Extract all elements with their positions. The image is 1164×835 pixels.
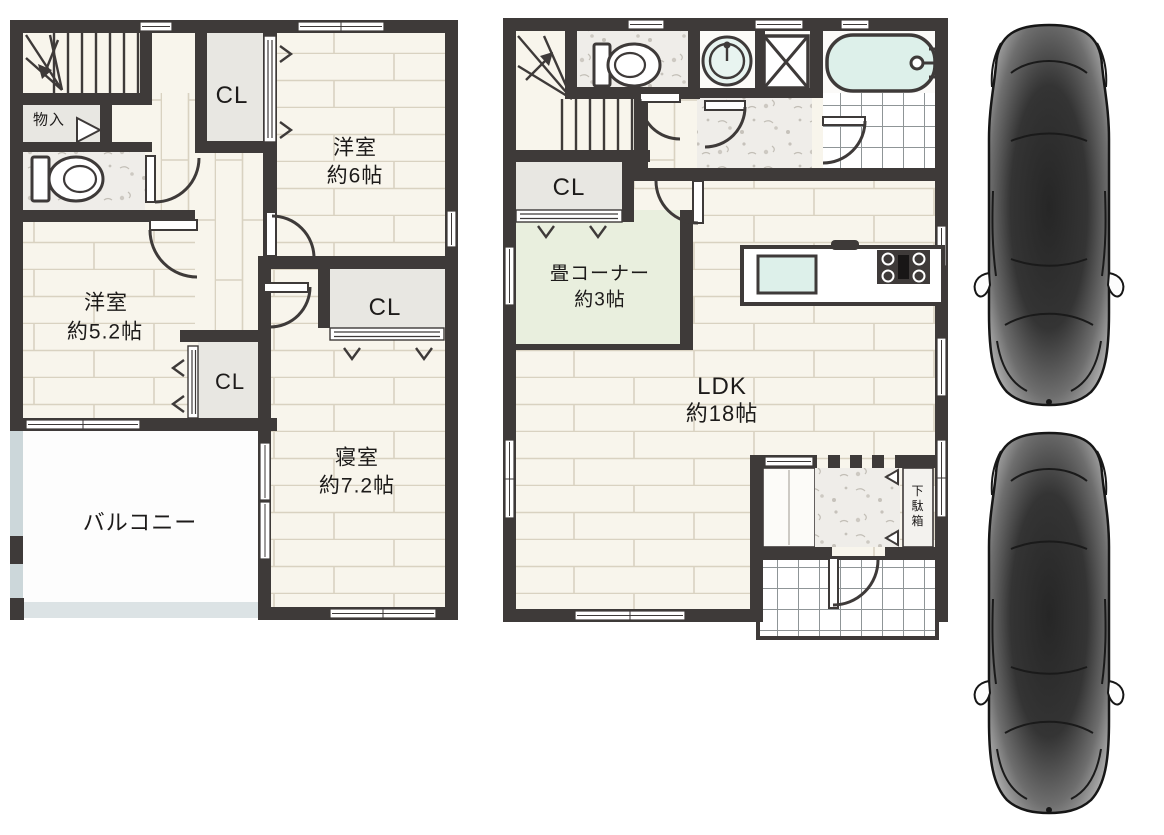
porch xyxy=(758,558,937,638)
1f-hall-floor xyxy=(648,99,697,168)
label-western52-size: 約5.2帖 xyxy=(67,322,143,343)
floor-plan-1f xyxy=(503,18,948,638)
car-top-view-2 xyxy=(975,433,1124,813)
floor-plan-page: 物入 CL 洋室 約6帖 洋室 約5.2帖 CL CL 寝室 約7.2帖 バルコ… xyxy=(0,0,1164,835)
stove-icon xyxy=(877,250,930,284)
label-bedroom-name: 寝室 xyxy=(335,448,379,469)
label-western6-size: 約6帖 xyxy=(327,166,384,187)
car-top-view-1 xyxy=(975,25,1124,405)
washing-machine-icon xyxy=(764,36,808,88)
kitchen-sink-icon xyxy=(758,256,816,293)
1f-toilet-icon xyxy=(594,44,660,86)
kitchen-counter xyxy=(742,240,943,304)
label-closet-top-2f: CL xyxy=(216,84,249,108)
label-ldk-name: LDK xyxy=(697,375,747,399)
floor-plan-drawing xyxy=(0,0,1164,835)
label-western6-name: 洋室 xyxy=(333,138,377,159)
washbasin-icon xyxy=(703,37,751,85)
label-closet-1f: CL xyxy=(553,176,586,200)
bathtub-icon xyxy=(827,35,938,91)
label-ldk-size: 約18帖 xyxy=(686,403,758,425)
faucet-icon xyxy=(831,240,859,250)
bathroom-tile-floor xyxy=(823,93,935,168)
label-closet-small-2f: CL xyxy=(215,371,245,393)
genkan-floor xyxy=(815,468,900,547)
label-western52-name: 洋室 xyxy=(84,293,128,314)
label-tatami-name: 畳コーナー xyxy=(550,265,650,284)
2f-toilet-icon xyxy=(32,157,103,201)
label-bedroom-size: 約7.2帖 xyxy=(319,476,395,497)
label-tatami-size: 約3帖 xyxy=(574,291,626,310)
label-closet-mid-2f: CL xyxy=(369,296,402,320)
label-shoe-cabinet: 下駄箱 xyxy=(911,485,923,530)
label-storage: 物入 xyxy=(33,113,65,128)
label-balcony: バルコニー xyxy=(83,512,198,534)
